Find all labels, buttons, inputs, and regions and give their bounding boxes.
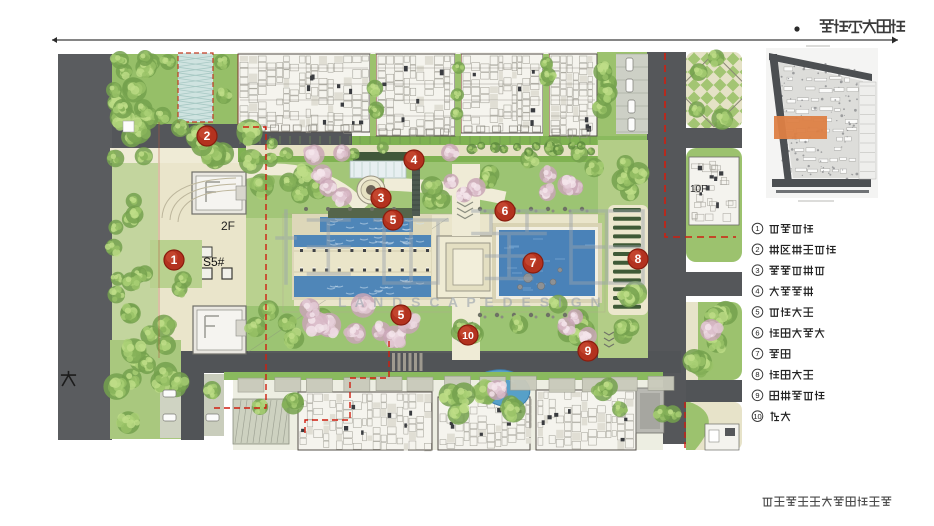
svg-text:4: 4	[755, 287, 759, 296]
svg-text:5: 5	[398, 308, 405, 322]
svg-text:8: 8	[755, 370, 759, 379]
svg-text:6: 6	[502, 204, 509, 218]
svg-text:1: 1	[755, 224, 759, 233]
svg-text:2: 2	[204, 129, 211, 143]
svg-text:2F: 2F	[221, 219, 235, 233]
svg-text:6: 6	[755, 328, 759, 337]
svg-text:5: 5	[390, 213, 397, 227]
svg-text:5: 5	[755, 308, 759, 317]
svg-text:4: 4	[411, 153, 418, 167]
svg-text:1: 1	[171, 253, 178, 267]
svg-text:10: 10	[462, 330, 474, 342]
svg-text:10: 10	[753, 412, 761, 421]
svg-text:7: 7	[530, 256, 537, 270]
svg-text:3: 3	[378, 191, 385, 205]
svg-text:L A N D S C A P E D E S I G: L A N D S C A P E D E S I G N	[338, 294, 603, 310]
svg-text:8: 8	[635, 252, 642, 266]
svg-text:10F: 10F	[690, 184, 707, 195]
svg-text:9: 9	[755, 391, 759, 400]
svg-text:2: 2	[755, 245, 759, 254]
svg-text:7: 7	[755, 349, 759, 358]
svg-text:9: 9	[585, 344, 592, 358]
svg-text:3: 3	[755, 266, 759, 275]
